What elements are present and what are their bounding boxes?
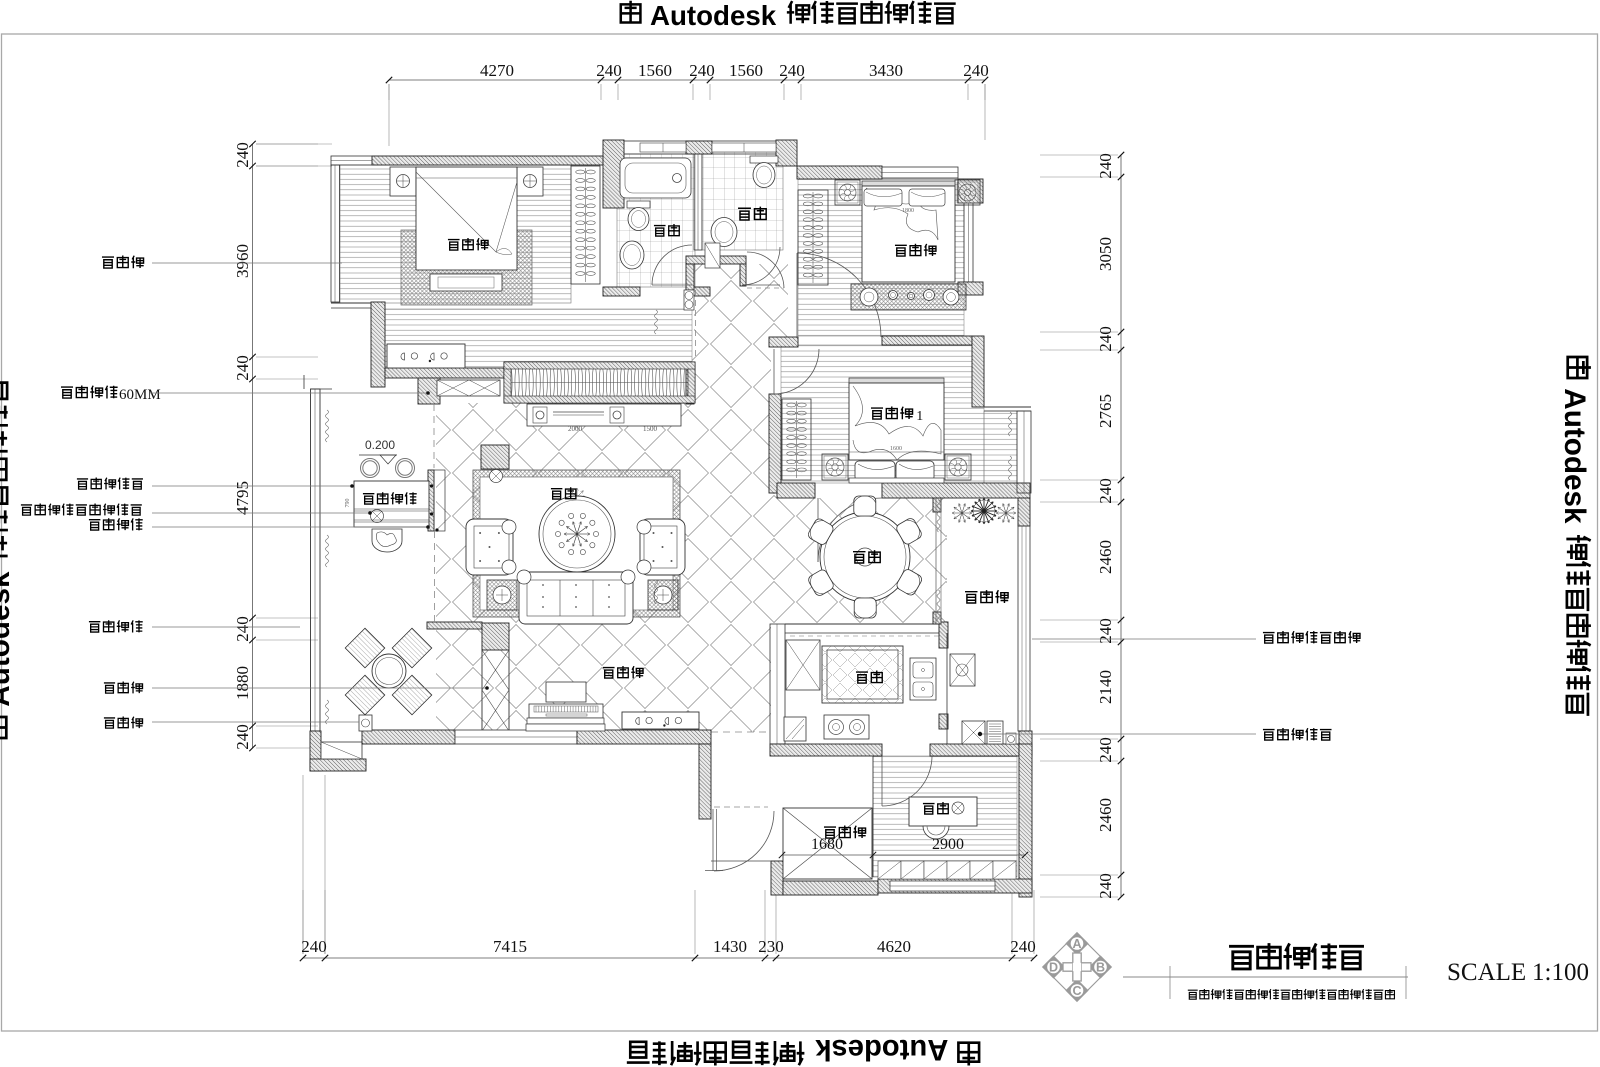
svg-text:3050: 3050 bbox=[1096, 237, 1115, 271]
svg-text:240: 240 bbox=[233, 355, 252, 381]
svg-text:2460: 2460 bbox=[1096, 798, 1115, 832]
svg-text:Autodesk: Autodesk bbox=[815, 1033, 949, 1065]
svg-text:240: 240 bbox=[1096, 618, 1115, 644]
svg-text:2900: 2900 bbox=[932, 836, 964, 853]
svg-text:2140: 2140 bbox=[1096, 670, 1115, 704]
svg-text:240: 240 bbox=[233, 616, 252, 642]
svg-text:790: 790 bbox=[345, 499, 351, 508]
svg-text:D: D bbox=[1049, 960, 1058, 974]
svg-text:240: 240 bbox=[1096, 326, 1115, 352]
svg-text:240: 240 bbox=[1096, 873, 1115, 899]
svg-text:240: 240 bbox=[596, 61, 622, 80]
svg-text:240: 240 bbox=[301, 937, 327, 956]
svg-text:1600: 1600 bbox=[890, 446, 902, 452]
svg-text:1430: 1430 bbox=[713, 937, 747, 956]
svg-text:1560: 1560 bbox=[729, 61, 763, 80]
svg-text:240: 240 bbox=[233, 142, 252, 168]
svg-text:SCALE: SCALE bbox=[1447, 959, 1526, 986]
svg-text:C: C bbox=[1072, 984, 1081, 998]
svg-text:4270: 4270 bbox=[480, 61, 514, 80]
svg-text:60MM: 60MM bbox=[119, 387, 161, 403]
svg-text:4620: 4620 bbox=[877, 937, 911, 956]
svg-text:Autodesk: Autodesk bbox=[0, 571, 16, 707]
svg-text:240: 240 bbox=[963, 61, 989, 80]
svg-text:1800: 1800 bbox=[902, 208, 914, 214]
svg-text:1560: 1560 bbox=[638, 61, 672, 80]
svg-text:0.200: 0.200 bbox=[365, 438, 395, 452]
svg-text:240: 240 bbox=[779, 61, 805, 80]
svg-text:3430: 3430 bbox=[869, 61, 903, 80]
svg-text:Autodesk: Autodesk bbox=[1558, 388, 1591, 524]
svg-text:A: A bbox=[1072, 937, 1081, 951]
svg-text:B: B bbox=[1096, 960, 1105, 974]
svg-text:240: 240 bbox=[1096, 737, 1115, 763]
svg-text:1: 1 bbox=[916, 409, 923, 424]
svg-text:230: 230 bbox=[758, 937, 784, 956]
svg-text:240: 240 bbox=[233, 724, 252, 750]
svg-text:7415: 7415 bbox=[493, 937, 527, 956]
svg-text:1:100: 1:100 bbox=[1532, 959, 1589, 986]
svg-text:3960: 3960 bbox=[233, 244, 252, 278]
svg-text:1500: 1500 bbox=[643, 425, 658, 433]
svg-text:240: 240 bbox=[1010, 937, 1036, 956]
svg-text:240: 240 bbox=[1096, 153, 1115, 179]
svg-text:2000: 2000 bbox=[568, 425, 583, 433]
svg-text:1880: 1880 bbox=[233, 666, 252, 700]
svg-text:2765: 2765 bbox=[1096, 394, 1115, 428]
svg-text:Autodesk: Autodesk bbox=[650, 0, 777, 31]
svg-text:2460: 2460 bbox=[1096, 540, 1115, 574]
svg-text:240: 240 bbox=[1096, 478, 1115, 504]
svg-text:240: 240 bbox=[689, 61, 715, 80]
